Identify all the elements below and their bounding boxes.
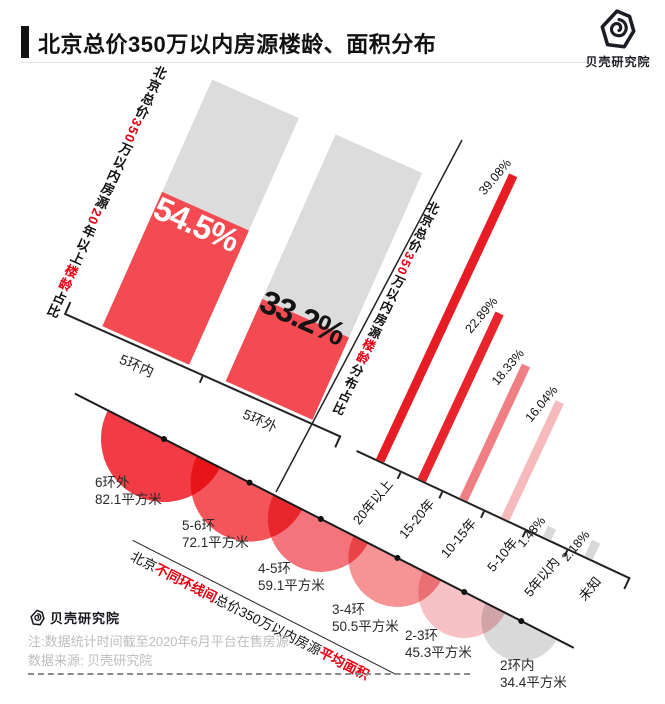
right-bar-15-20年	[417, 311, 503, 482]
left-axis-end-cap	[334, 435, 341, 448]
circle-label-6环外: 6环外82.1平方米	[95, 474, 162, 508]
left-axis-tick	[199, 376, 203, 383]
right-axis-tick	[438, 492, 442, 499]
circle-label-ring: 2环内	[500, 657, 567, 674]
left-vtitle-text: 万以内房源	[91, 140, 134, 212]
circle-label-area: 82.1平方米	[95, 491, 162, 508]
left-vtitle-text: 北京总价	[131, 63, 168, 122]
infographic-canvas: 北京总价350万以内房源楼龄、面积分布 贝壳研究院 北京总价350万以内房源20…	[0, 0, 665, 704]
right-axis-tick	[397, 472, 401, 479]
circle-label-ring: 3-4环	[332, 601, 399, 618]
title-underline	[21, 62, 588, 63]
left-vtitle-text: 年以上	[66, 222, 97, 268]
circle-label-area: 45.3平方米	[405, 644, 472, 661]
page-title: 北京总价350万以内房源楼龄、面积分布	[38, 27, 436, 59]
brand-logo-bottom: 贝壳研究院	[29, 608, 120, 627]
circle-label-area: 34.4平方米	[500, 674, 567, 691]
right-axis-end-cap	[623, 577, 630, 590]
brand-name-bottom: 贝壳研究院	[50, 608, 120, 627]
circle-label-ring: 5-6环	[182, 517, 249, 534]
left-chart-bars: 54.5%33.2%	[166, 48, 486, 190]
circles-title-highlight: 平均面积	[317, 645, 372, 683]
chart-age-share-by-ring: 北京总价350万以内房源20年以上楼龄占比 54.5%33.2% 5环内5环外	[26, 48, 486, 506]
left-vtitle-text: 占比	[43, 288, 68, 321]
circle-label-4-5环: 4-5环59.1平方米	[258, 560, 325, 594]
circle-label-area: 72.1平方米	[182, 534, 249, 551]
beike-shell-icon	[597, 8, 639, 52]
bottom-dashed-line	[28, 673, 470, 675]
right-axis-tick	[480, 511, 484, 518]
circle-label-2环内: 2环内34.4平方米	[500, 657, 567, 691]
footnote-source: 数据来源: 贝壳研究院	[28, 650, 152, 669]
circle-label-2-3环: 2-3环45.3平方米	[405, 627, 472, 661]
circle-label-ring: 6环外	[95, 474, 162, 491]
footnote-statistics: 注:数据统计时间截至2020年6月平台在售房源	[28, 631, 289, 650]
circle-label-3-4环: 3-4环50.5平方米	[332, 601, 399, 635]
title-accent-bar	[21, 26, 29, 58]
beike-shell-icon-small	[29, 609, 46, 627]
circle-label-area: 59.1平方米	[258, 577, 325, 594]
brand-logo-top: 贝壳研究院	[576, 8, 660, 70]
circle-label-5-6环: 5-6环72.1平方米	[182, 517, 249, 551]
circle-label-ring: 2-3环	[405, 627, 472, 644]
circle-label-ring: 4-5环	[258, 560, 325, 577]
circle-label-area: 50.5平方米	[332, 618, 399, 635]
brand-name-top: 贝壳研究院	[576, 53, 660, 70]
